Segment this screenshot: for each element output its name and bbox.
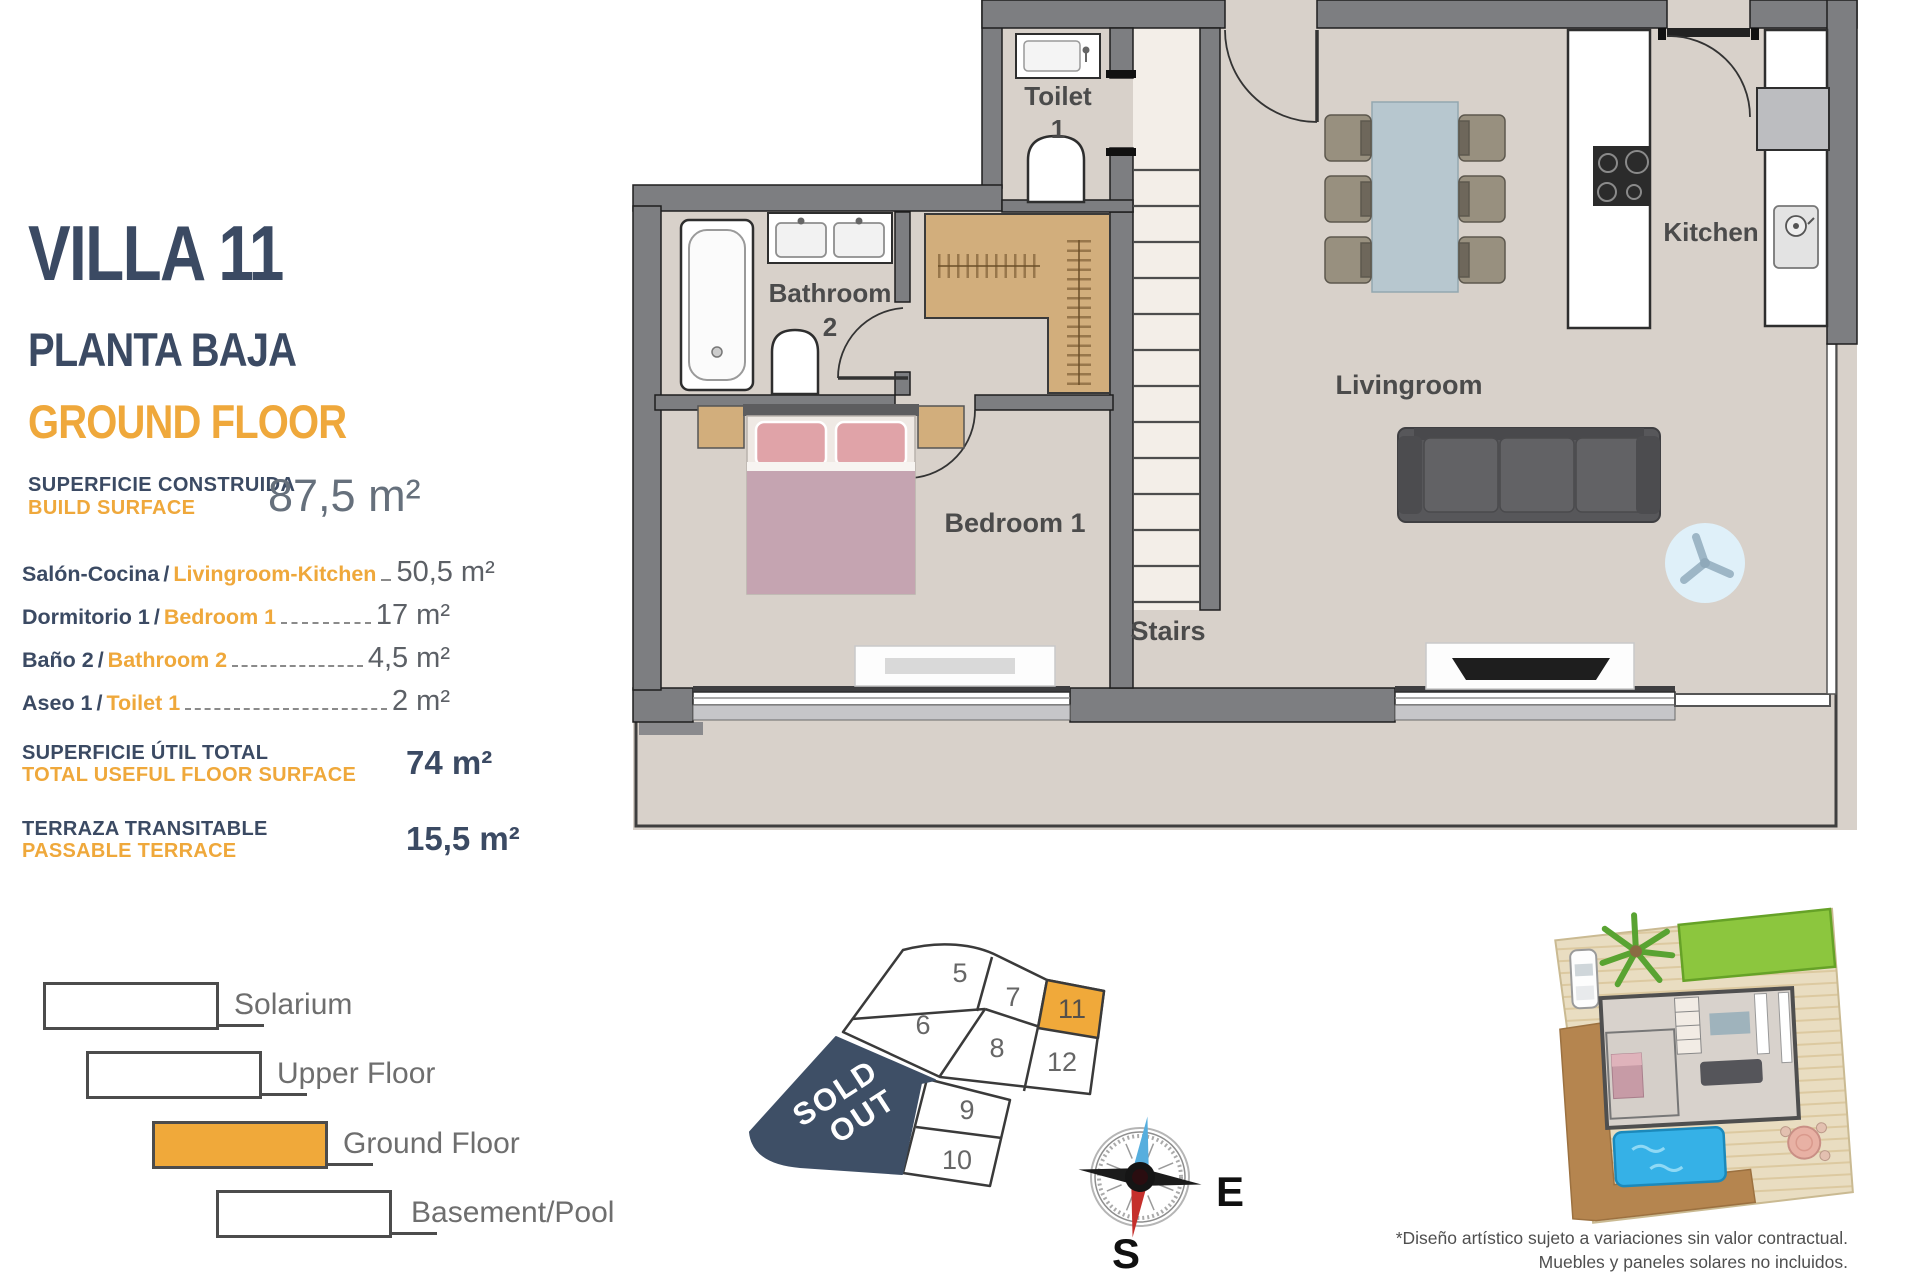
bedroom-sideboard bbox=[855, 646, 1055, 686]
legend-box-ground-floor bbox=[152, 1121, 328, 1169]
dotted-leader bbox=[281, 622, 371, 624]
ceiling-fan-icon bbox=[1665, 523, 1745, 603]
site-pool bbox=[1613, 1127, 1726, 1187]
toilet1-sink bbox=[1016, 34, 1100, 78]
total-useful-surface-value: 74 m² bbox=[406, 744, 492, 782]
passable-terrace-labels: TERRAZA TRANSITABLE PASSABLE TERRACE bbox=[22, 818, 268, 862]
legend-box-basement-pool bbox=[216, 1190, 392, 1238]
room-row-livingroom-kitchen: Salón-Cocina/ Livingroom-Kitchen 50,5 m² bbox=[22, 556, 450, 586]
plot-cell-5: 5 bbox=[952, 958, 967, 988]
kitchen-sink bbox=[1774, 206, 1818, 268]
build-surface-labels: SUPERFICIE CONSTRUIDA BUILD SURFACE bbox=[28, 474, 295, 520]
compass-east-label: E bbox=[1216, 1168, 1244, 1215]
dotted-leader bbox=[232, 665, 363, 667]
disclaimer-line-2: Muebles y paneles solares no incluidos. bbox=[1396, 1250, 1848, 1274]
build-surface-value: 87,5 m² bbox=[268, 470, 421, 522]
kitchen-counter bbox=[1757, 30, 1829, 326]
disclaimer: *Diseño artístico sujeto a variaciones s… bbox=[1396, 1226, 1848, 1274]
legend-box-upper-floor bbox=[86, 1051, 262, 1099]
floor-plan: Toilet 1 Bathroom 2 Bedroom 1 Stairs Liv… bbox=[626, 0, 1857, 830]
villa-title: VILLA 11 bbox=[28, 208, 283, 299]
double-sink bbox=[768, 213, 892, 263]
subtitle-planta-baja: PLANTA BAJA bbox=[28, 322, 296, 377]
room-row-toilet-1: Aseo 1/ Toilet 1 2 m² bbox=[22, 685, 450, 715]
plot-cell-6: 6 bbox=[915, 1010, 930, 1040]
window-bedroom bbox=[693, 686, 1070, 720]
label-stairs: Stairs bbox=[1130, 616, 1205, 646]
legend-box-solarium bbox=[43, 982, 219, 1030]
fridge bbox=[1757, 88, 1829, 150]
plan-notch bbox=[626, 0, 984, 185]
plot-cell-10: 10 bbox=[942, 1145, 972, 1175]
label-bathroom: Bathroom bbox=[769, 278, 892, 308]
info-panel: VILLA 11 PLANTA BAJA GROUND FLOOR SUPERF… bbox=[0, 0, 470, 900]
dotted-leader bbox=[381, 579, 391, 581]
label-bedroom: Bedroom 1 bbox=[944, 508, 1085, 538]
site-car bbox=[1570, 949, 1599, 1008]
bathtub bbox=[681, 220, 753, 390]
bed bbox=[743, 404, 919, 594]
total-useful-surface-labels: SUPERFICIE ÚTIL TOTAL TOTAL USEFUL FLOOR… bbox=[22, 742, 356, 786]
room-areas-list: Salón-Cocina/ Livingroom-Kitchen 50,5 m²… bbox=[22, 556, 450, 728]
disclaimer-line-1: *Diseño artístico sujeto a variaciones s… bbox=[1396, 1226, 1848, 1250]
build-surface-label-en: BUILD SURFACE bbox=[28, 497, 295, 520]
toilet-bathroom2 bbox=[772, 330, 818, 394]
tv-sideboard bbox=[1426, 643, 1634, 689]
dining-table bbox=[1372, 102, 1458, 292]
label-kitchen: Kitchen bbox=[1663, 217, 1758, 247]
stairs-floor bbox=[1133, 28, 1200, 610]
compass-icon: E S bbox=[1071, 1109, 1244, 1277]
site-thumbnail bbox=[1554, 905, 1854, 1224]
passable-terrace-value: 15,5 m² bbox=[406, 820, 520, 858]
site-lawn bbox=[1678, 909, 1835, 981]
plot-cell-9: 9 bbox=[959, 1095, 974, 1125]
label-toilet-num: 1 bbox=[1051, 114, 1065, 144]
room-row-bedroom-1: Dormitorio 1/ Bedroom 1 17 m² bbox=[22, 599, 450, 629]
plot-map: SOLD OUT 5 7 11 6 8 12 9 10 bbox=[750, 944, 1104, 1186]
subtitle-ground-floor: GROUND FLOOR bbox=[28, 394, 346, 449]
kitchen-island bbox=[1568, 30, 1650, 328]
sofa bbox=[1398, 428, 1660, 522]
dotted-leader bbox=[185, 708, 387, 710]
plot-cell-7: 7 bbox=[1005, 982, 1020, 1012]
compass-south-label: S bbox=[1112, 1230, 1140, 1277]
plot-cell-12: 12 bbox=[1047, 1047, 1077, 1077]
label-toilet: Toilet bbox=[1024, 81, 1092, 111]
toilet1-wc bbox=[1028, 136, 1084, 202]
plot-cell-11: 11 bbox=[1058, 994, 1086, 1024]
label-bathroom-num: 2 bbox=[823, 312, 837, 342]
window-livingroom bbox=[1395, 686, 1675, 720]
floor-legend: Solarium Upper Floor Ground Floor Baseme… bbox=[0, 960, 620, 1260]
build-surface-label-es: SUPERFICIE CONSTRUIDA bbox=[28, 474, 295, 497]
window-box bbox=[639, 722, 703, 735]
site-house bbox=[1600, 988, 1799, 1128]
plot-cell-8: 8 bbox=[989, 1033, 1004, 1063]
room-row-bathroom-2: Baño 2/ Bathroom 2 4,5 m² bbox=[22, 642, 450, 672]
label-livingroom: Livingroom bbox=[1336, 370, 1483, 400]
